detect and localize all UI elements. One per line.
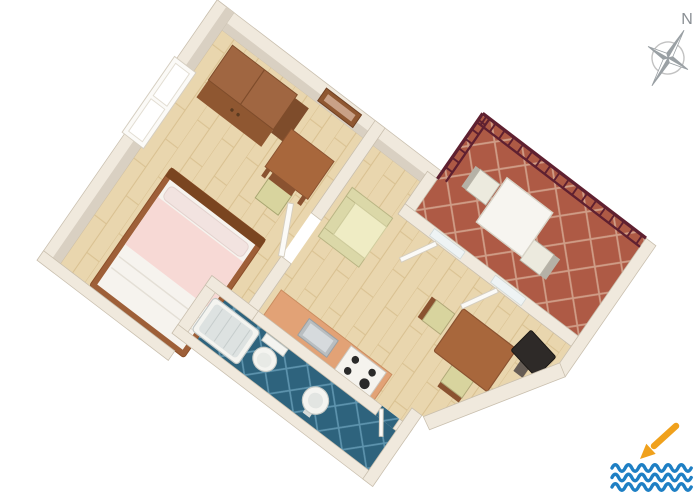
sea-waves-icon (612, 465, 691, 491)
compass-north-label: N (681, 11, 693, 28)
bathroom-door-leaf (379, 409, 383, 437)
floor-plan-page: N (0, 0, 700, 500)
floor-plan-render: N (0, 0, 700, 500)
